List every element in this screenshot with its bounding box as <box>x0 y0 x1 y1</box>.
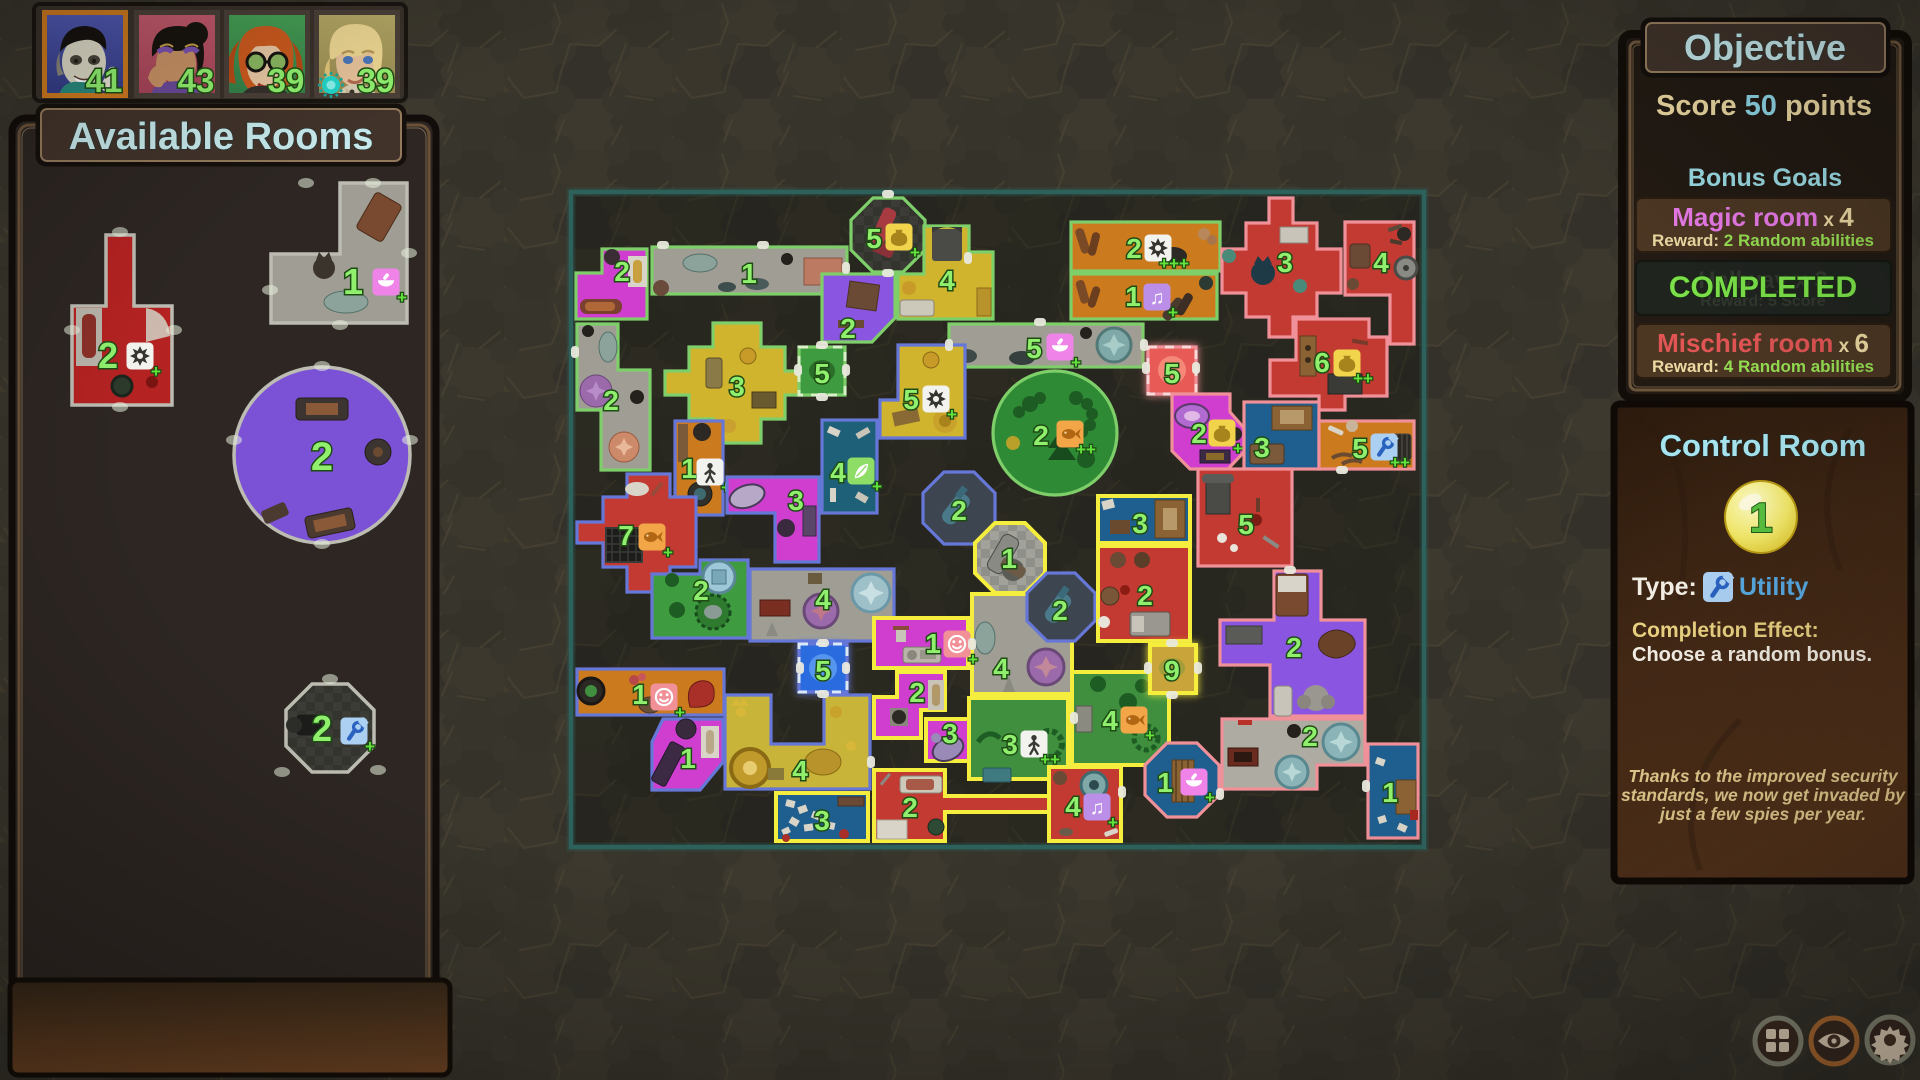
svg-text:2: 2 <box>951 495 967 526</box>
svg-text:7: 7 <box>618 520 634 551</box>
svg-text:Available Rooms: Available Rooms <box>69 116 374 158</box>
svg-text:43: 43 <box>178 62 215 99</box>
svg-text:+: + <box>1205 788 1215 807</box>
svg-text:2: 2 <box>603 385 619 416</box>
svg-text:Bonus Goals: Bonus Goals <box>1688 164 1842 192</box>
svg-text:+: + <box>1233 439 1243 458</box>
svg-text:39: 39 <box>358 62 395 99</box>
svg-text:2: 2 <box>98 335 118 376</box>
svg-text:5: 5 <box>1352 433 1368 464</box>
svg-text:3: 3 <box>814 805 830 836</box>
svg-text:+: + <box>1071 353 1081 372</box>
svg-text:3: 3 <box>1002 729 1018 760</box>
svg-text:1: 1 <box>925 628 941 659</box>
svg-text:3: 3 <box>1254 432 1270 463</box>
svg-text:4: 4 <box>1102 705 1118 736</box>
svg-text:4: 4 <box>939 265 955 296</box>
svg-text:1: 1 <box>1749 494 1772 541</box>
svg-text:3: 3 <box>729 371 745 402</box>
svg-text:1: 1 <box>680 743 696 774</box>
svg-text:+++: +++ <box>1159 254 1189 273</box>
svg-text:1: 1 <box>632 679 648 710</box>
svg-text:2: 2 <box>312 708 332 749</box>
svg-text:Score 50 points: Score 50 points <box>1656 90 1872 122</box>
svg-text:2: 2 <box>311 435 333 479</box>
svg-text:3: 3 <box>1277 247 1293 278</box>
svg-text:1: 1 <box>741 258 757 289</box>
svg-text:5: 5 <box>814 358 830 389</box>
svg-text:5: 5 <box>866 223 882 254</box>
svg-text:+: + <box>968 650 978 669</box>
svg-text:2: 2 <box>1302 721 1318 752</box>
svg-text:4: 4 <box>993 653 1009 684</box>
svg-text:5: 5 <box>1164 358 1180 389</box>
svg-text:Type:: Type: <box>1632 573 1697 601</box>
svg-text:5: 5 <box>1026 333 1042 364</box>
svg-text:++: ++ <box>1076 440 1096 459</box>
svg-text:+: + <box>663 543 673 562</box>
svg-text:6: 6 <box>1314 347 1330 378</box>
svg-text:2: 2 <box>909 677 925 708</box>
svg-text:4: 4 <box>792 755 808 786</box>
svg-text:1: 1 <box>1125 281 1141 312</box>
svg-text:4: 4 <box>815 584 831 615</box>
svg-text:Completion Effect:: Completion Effect: <box>1632 619 1819 642</box>
svg-text:1: 1 <box>681 453 697 484</box>
svg-text:++: ++ <box>1353 369 1373 388</box>
svg-text:+: + <box>872 477 882 496</box>
svg-text:3: 3 <box>1132 508 1148 539</box>
svg-text:2: 2 <box>1052 595 1068 626</box>
svg-text:3: 3 <box>788 485 804 516</box>
svg-text:5: 5 <box>903 384 919 415</box>
svg-text:+: + <box>397 288 407 307</box>
svg-text:+: + <box>1145 726 1155 745</box>
svg-text:4: 4 <box>1065 791 1081 822</box>
svg-text:2: 2 <box>1286 632 1302 663</box>
svg-text:9: 9 <box>1164 655 1180 686</box>
svg-text:2: 2 <box>693 575 709 606</box>
svg-text:1: 1 <box>343 261 363 302</box>
svg-text:2: 2 <box>840 313 856 344</box>
svg-text:Control Room: Control Room <box>1660 428 1867 463</box>
svg-text:5: 5 <box>815 655 831 686</box>
svg-text:2: 2 <box>1033 420 1049 451</box>
svg-text:2: 2 <box>902 792 918 823</box>
svg-text:41: 41 <box>86 62 123 99</box>
svg-text:+: + <box>365 737 375 756</box>
svg-text:Reward: 4 Random abilities: Reward: 4 Random abilities <box>1652 357 1874 376</box>
svg-text:5: 5 <box>1238 509 1254 540</box>
svg-text:+: + <box>1168 303 1178 322</box>
svg-text:2: 2 <box>1126 233 1142 264</box>
svg-text:+: + <box>910 243 920 262</box>
svg-text:2: 2 <box>1137 580 1153 611</box>
svg-text:4: 4 <box>1373 247 1389 278</box>
svg-text:2: 2 <box>1191 418 1207 449</box>
svg-text:2: 2 <box>614 256 630 287</box>
svg-text:Thanks to the improved securit: Thanks to the improved security <box>1628 766 1899 786</box>
svg-text:+: + <box>151 362 161 381</box>
svg-text:+: + <box>947 405 957 424</box>
svg-text:standards, we now get invaded: standards, we now get invaded by <box>1621 785 1906 805</box>
svg-text:Objective: Objective <box>1684 27 1846 68</box>
svg-text:++: ++ <box>1390 453 1410 472</box>
svg-text:Reward: 2 Random abilities: Reward: 2 Random abilities <box>1652 231 1874 250</box>
svg-text:Choose a random bonus.: Choose a random bonus. <box>1632 644 1872 666</box>
svg-text:1: 1 <box>1157 767 1173 798</box>
svg-text:Utility: Utility <box>1739 573 1809 601</box>
svg-text:39: 39 <box>268 62 305 99</box>
svg-text:just a few spies per year.: just a few spies per year. <box>1658 804 1866 824</box>
svg-text:3: 3 <box>942 718 958 749</box>
svg-text:4: 4 <box>830 457 846 488</box>
svg-text:1: 1 <box>1382 777 1398 808</box>
svg-text:+: + <box>1108 813 1118 832</box>
svg-text:1: 1 <box>1001 543 1017 574</box>
svg-text:COMPLETED: COMPLETED <box>1669 271 1857 304</box>
